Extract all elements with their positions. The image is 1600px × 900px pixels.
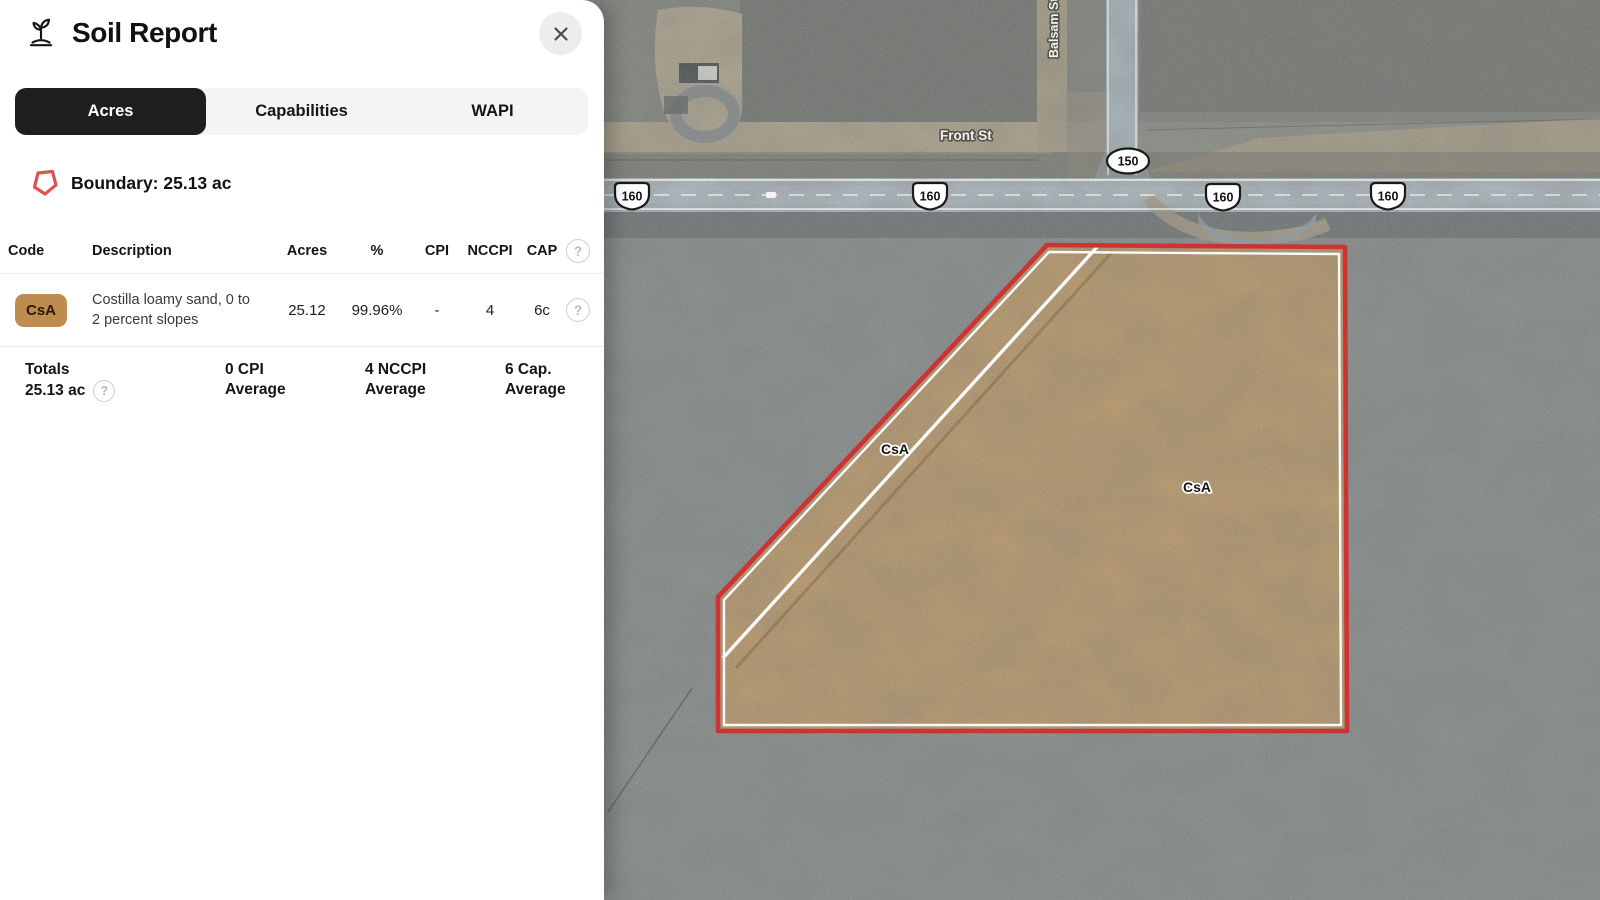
noise-light xyxy=(600,0,1600,900)
table-row: CsA Costilla loamy sand, 0 to 2 percent … xyxy=(0,273,604,347)
help-icon[interactable]: ? xyxy=(566,298,590,322)
close-button[interactable] xyxy=(539,12,582,55)
tab-wapi[interactable]: WAPI xyxy=(397,88,588,135)
route-shield-160: 160 xyxy=(913,183,947,210)
col-header-code: Code xyxy=(8,243,92,259)
col-header-nccpi: NCCPI xyxy=(462,243,518,259)
tab-capabilities[interactable]: Capabilities xyxy=(206,88,397,135)
svg-text:160: 160 xyxy=(1378,190,1399,204)
totals-label: Totals xyxy=(25,360,225,380)
svg-text:160: 160 xyxy=(920,190,941,204)
satellite-map[interactable]: Front St Balsam St CsA CsA 160 160 150 1… xyxy=(600,0,1600,900)
street-label-front-st: Front St xyxy=(940,128,992,143)
route-shield-160: 160 xyxy=(615,183,649,210)
col-header-cpi: CPI xyxy=(412,243,462,259)
table-header: Code Description Acres % CPI NCCPI CAP ? xyxy=(0,235,604,267)
cell-acres: 25.12 xyxy=(272,302,342,319)
report-tabs: Acres Capabilities WAPI xyxy=(15,88,588,135)
cell-cpi: - xyxy=(412,302,462,319)
panel-header: Soil Report xyxy=(0,0,604,50)
page-title: Soil Report xyxy=(72,17,217,49)
boundary-row: Boundary: 25.13 ac xyxy=(30,168,604,198)
soil-table: Code Description Acres % CPI NCCPI CAP ?… xyxy=(0,235,604,402)
col-header-acres: Acres xyxy=(272,243,342,259)
cell-cap: 6c xyxy=(518,302,566,319)
totals-cpi-caption: Average xyxy=(225,380,365,400)
totals-acres: 25.13 ac xyxy=(25,381,85,401)
totals-nccpi-caption: Average xyxy=(365,380,505,400)
totals-label-block: Totals 25.13 ac ? xyxy=(25,360,225,402)
totals-cpi-value: 0 CPI xyxy=(225,360,365,380)
soil-zone-label: CsA xyxy=(881,441,909,457)
soil-report-screen: Front St Balsam St CsA CsA 160 160 150 1… xyxy=(0,0,1600,900)
soil-description: Costilla loamy sand, 0 to 2 percent slop… xyxy=(92,290,260,330)
route-shield-160: 160 xyxy=(1206,184,1240,211)
totals-cap: 6 Cap. Average xyxy=(505,360,635,401)
help-icon[interactable]: ? xyxy=(566,239,590,263)
help-icon[interactable]: ? xyxy=(93,380,115,402)
cell-nccpi: 4 xyxy=(462,302,518,319)
vehicle-on-road xyxy=(766,192,776,198)
totals-cap-caption: Average xyxy=(505,380,635,400)
col-header-description: Description xyxy=(92,243,272,259)
street-label-balsam-st: Balsam St xyxy=(1047,0,1061,58)
soil-code-badge: CsA xyxy=(15,294,67,327)
totals-cpi: 0 CPI Average xyxy=(225,360,365,401)
tab-acres[interactable]: Acres xyxy=(15,88,206,135)
svg-text:150: 150 xyxy=(1118,155,1139,169)
soil-zone-label: CsA xyxy=(1183,479,1211,495)
totals-row: Totals 25.13 ac ? 0 CPI Average 4 NCCPI … xyxy=(0,347,604,402)
svg-text:160: 160 xyxy=(622,190,643,204)
soil-report-panel: Soil Report Acres Capabilities WAPI Boun… xyxy=(0,0,604,900)
plant-icon xyxy=(24,16,58,50)
route-shield-150: 150 xyxy=(1107,149,1149,174)
col-header-percent: % xyxy=(342,243,412,259)
boundary-label: Boundary: 25.13 ac xyxy=(71,173,231,194)
boundary-polygon-icon xyxy=(30,168,60,198)
svg-text:160: 160 xyxy=(1213,191,1234,205)
map-canvas: Front St Balsam St CsA CsA 160 160 150 1… xyxy=(600,0,1600,900)
totals-nccpi-value: 4 NCCPI xyxy=(365,360,505,380)
col-header-cap: CAP xyxy=(518,243,566,259)
route-shield-160: 160 xyxy=(1371,183,1405,210)
close-icon xyxy=(552,25,570,43)
totals-cap-value: 6 Cap. xyxy=(505,360,635,380)
totals-nccpi: 4 NCCPI Average xyxy=(365,360,505,401)
cell-percent: 99.96% xyxy=(342,302,412,319)
